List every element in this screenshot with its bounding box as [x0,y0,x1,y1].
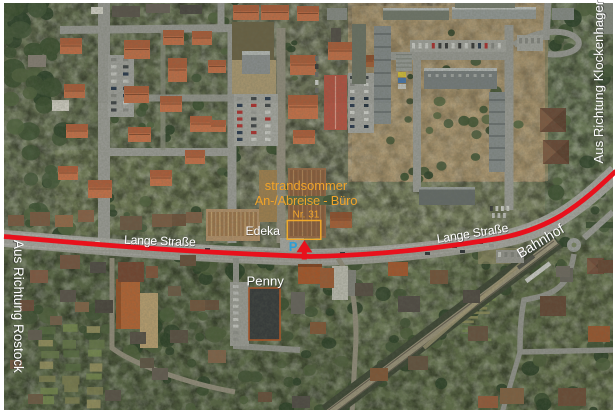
svg-text:strandsommer: strandsommer [265,178,348,193]
svg-text:An-/Abreise - Büro: An-/Abreise - Büro [255,193,357,208]
svg-text:Nr. 31: Nr. 31 [293,210,320,221]
svg-text:Penny: Penny [247,274,285,289]
svg-text:Aus Richtung Rostock: Aus Richtung Rostock [11,240,26,373]
svg-text:Edeka: Edeka [246,224,281,238]
svg-text:Lange Straße: Lange Straße [124,233,196,249]
svg-text:P: P [289,239,298,254]
svg-text:Aus Richtung Klockenhagen: Aus Richtung Klockenhagen [591,0,606,164]
